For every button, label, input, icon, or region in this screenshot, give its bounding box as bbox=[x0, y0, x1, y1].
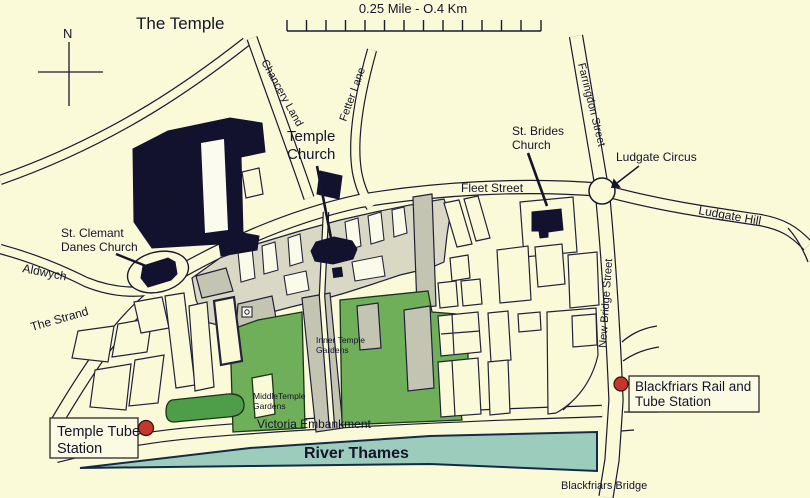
blackfriars-station: Blackfriars Rail and Tube Station bbox=[614, 376, 759, 412]
street-victoria-embankment: Victoria Embankment bbox=[257, 417, 371, 431]
temple-map: The Temple N 0.25 Mile - O.4 Km Chancery… bbox=[0, 0, 810, 498]
page-title: The Temple bbox=[136, 14, 225, 33]
temple-station-label-2: Station bbox=[57, 441, 102, 457]
royal-courts-courtyard bbox=[201, 139, 228, 233]
temple-church-building bbox=[311, 237, 357, 264]
temple-church-label-1: Temple bbox=[287, 128, 335, 145]
ludgate-circus-label: Ludgate Circus bbox=[616, 150, 697, 164]
temple-tube-station: Temple Tube Station bbox=[50, 418, 154, 458]
inner-gardens-label-2: Gardens bbox=[316, 345, 349, 355]
blackfriars-bridge-label: Blackfriars Bridge bbox=[561, 480, 647, 492]
blackfriars-station-label-2: Tube Station bbox=[635, 394, 711, 409]
st-brides-label-2: Church bbox=[512, 138, 551, 152]
temple-church-label-2: Church bbox=[287, 146, 335, 163]
map-canvas: The Temple N 0.25 Mile - O.4 Km Chancery… bbox=[0, 0, 810, 498]
st-brides-label-1: St. Brides bbox=[512, 124, 564, 138]
st-clemant-label-2: Danes Church bbox=[61, 240, 138, 254]
temple-station-label-1: Temple Tube bbox=[57, 424, 140, 440]
inner-gardens-label-1: Inner Temple bbox=[316, 335, 365, 345]
ludgate-circus-circle bbox=[589, 178, 615, 204]
middle-gardens-label-1: MiddleTemple bbox=[253, 391, 306, 401]
street-fleet: Fleet Street bbox=[461, 181, 524, 195]
middle-gardens-label-2: Gardens bbox=[253, 401, 286, 411]
scale-label: 0.25 Mile - O.4 Km bbox=[359, 1, 467, 16]
temple-station-dot bbox=[139, 421, 154, 436]
blackfriars-station-label-1: Blackfriars Rail and bbox=[635, 379, 751, 394]
compass-north-label: N bbox=[63, 26, 72, 41]
river-thames-label: River Thames bbox=[304, 445, 409, 462]
st-clemant-label-1: St. Clemant bbox=[61, 226, 124, 240]
temple-church-annex bbox=[332, 267, 342, 277]
blackfriars-station-dot bbox=[614, 377, 628, 391]
